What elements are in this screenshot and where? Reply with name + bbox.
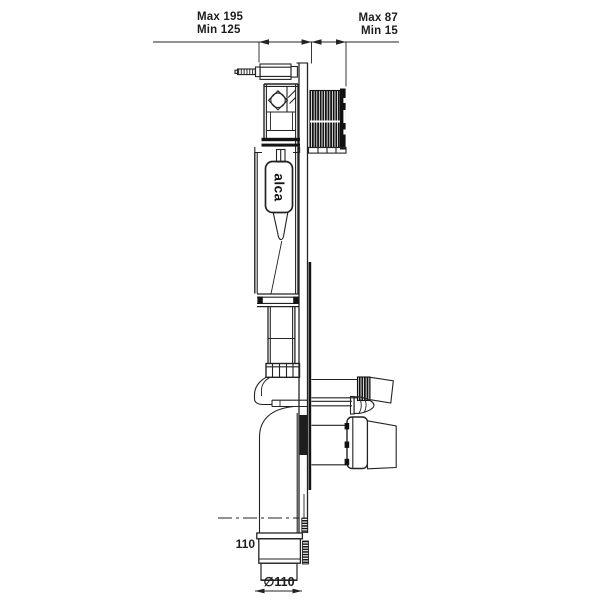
cistern-side-view-drawing <box>0 0 600 600</box>
dim-label-pipe-diameter: ∅110 <box>256 574 302 589</box>
dim-label-pipe-width: 110 <box>222 537 255 551</box>
outlet-elbow <box>255 377 309 406</box>
wall-plate <box>297 63 312 533</box>
dim-label-top-right: Max 87 Min 15 <box>358 12 398 38</box>
arrowhead-icon <box>255 589 265 594</box>
dim-label-top-left: Max 195 Min 125 <box>197 11 243 37</box>
logo-plate <box>266 162 293 213</box>
arrowhead-icon <box>259 39 269 44</box>
wc-outlet-connector <box>312 417 397 469</box>
cistern-tank <box>255 84 300 377</box>
arrowhead-icon <box>293 589 303 594</box>
dim-min-sleeve-label: Min 15 <box>358 25 398 38</box>
fill-valve <box>235 64 297 79</box>
arrowhead-icon <box>336 39 346 44</box>
dim-min-depth-label: Min 125 <box>197 24 243 37</box>
fixing-bolt <box>312 397 375 415</box>
dim-max-depth-label: Max 195 <box>197 11 243 24</box>
technical-drawing-page: Max 195 Min 125 Max 87 Min 15 110 ∅110 a… <box>0 0 600 600</box>
bottom-dimension-line <box>255 589 302 594</box>
arrowhead-icon <box>302 39 312 44</box>
dim-max-sleeve-label: Max 87 <box>358 12 398 25</box>
flush-pipe <box>312 377 394 403</box>
flush-button-sleeve <box>309 89 347 154</box>
arrowhead-icon <box>312 39 322 44</box>
